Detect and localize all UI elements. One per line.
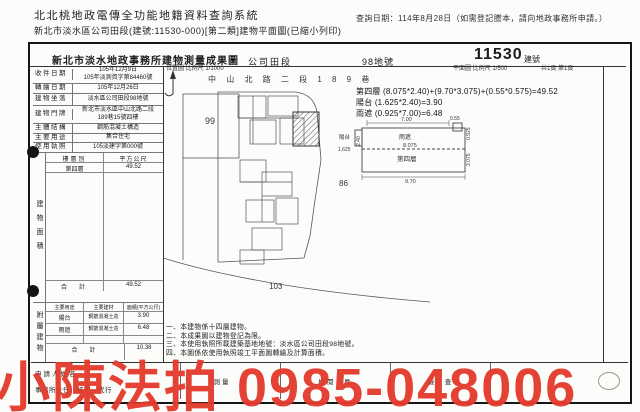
total-value: 49.52: [104, 281, 163, 291]
dim-right-top: 0.925: [466, 127, 472, 140]
system-title: 北北桃地政電傳全功能地籍資料查詢系統: [34, 7, 259, 23]
info-value: 105淡建字第000號: [73, 143, 163, 153]
hole-punch-mark: [27, 285, 39, 297]
building-info-table: 收件日期 105年12月9日105年淡測資字第84460號 轉繪日期 105年1…: [33, 66, 163, 153]
balcony-label: 陽台: [339, 133, 351, 141]
info-value-line: 189巷15號四樓: [98, 115, 139, 121]
col-material: 主要建材: [84, 303, 124, 311]
dim-balcony: 1.625: [338, 147, 351, 153]
query-date: 查詢日期：114年8月28日（如需登記謄本，請向地政事務所申請。）: [356, 13, 607, 24]
table-row: 第四層 49.52: [46, 163, 163, 173]
dim-mid: 8.075: [403, 143, 417, 149]
seal-stamp-icon: [598, 372, 620, 390]
info-value-line: 105年12月9日: [99, 67, 137, 73]
total-row: 合 計 49.52: [46, 281, 163, 291]
scanned-document: 北北桃地政電傳全功能地籍資料查詢系統 查詢日期：114年8月28日（如需登記謄本…: [0, 0, 640, 412]
parcel-label-103: 103: [269, 282, 283, 291]
road-curve: [163, 258, 430, 302]
location-map-scale: 位置圖 比例尺 1/1000: [166, 64, 224, 72]
col-unit: 平方公尺: [104, 153, 163, 162]
area-side-label: 建物面積: [33, 153, 46, 302]
dim-right: 3.075: [466, 153, 472, 166]
table-row: 使用執照 105淡建字第000號: [33, 143, 163, 153]
info-label: 使用執照: [33, 142, 73, 152]
info-value: 集合住宅: [73, 133, 163, 143]
annex-area: 3.90: [124, 312, 163, 323]
empty-cell: [124, 336, 163, 343]
info-label: 建物門牌: [33, 109, 73, 119]
parcel-label-86: 86: [339, 179, 348, 188]
table-row: 雨遮 鋼筋混凝土造 6.48: [46, 324, 163, 336]
table-row: 收件日期 105年12月9日105年淡測資字第84460號: [33, 66, 163, 84]
calc-line: 第四層 (8.075*2.40)+(9.70*3.075)+(0.55*0.57…: [356, 86, 606, 97]
auction-watermark: 小陳法拍 0985-048006: [0, 343, 577, 412]
dimension-lines: [362, 120, 465, 180]
empty-rows: [46, 173, 163, 281]
building-area-table: 建物面積 樓層別 平方公尺 第四層 49.52 合 計 49.52: [33, 153, 163, 303]
dim-left: 2.40: [356, 136, 362, 146]
floor-label: 第四層: [397, 154, 417, 163]
col-use: 主要用途: [46, 303, 84, 311]
empty-cell: [46, 336, 84, 343]
canopy-label: 雨遮: [399, 133, 411, 141]
site-plan: [163, 92, 430, 302]
area-calculation: 第四層 (8.075*2.40)+(9.70*3.075)+(0.55*0.57…: [356, 86, 606, 119]
col-floor: 樓層別: [46, 153, 104, 162]
floor-outline: [362, 128, 465, 172]
floor-area: 49.52: [104, 163, 163, 172]
annex-area: 6.48: [124, 324, 163, 335]
annex-use: 陽台: [46, 312, 84, 323]
empty-cell: [46, 173, 104, 280]
info-value: 105年12月26日: [73, 84, 163, 94]
table-header-row: 主要用途 主要建材 面積(平方公尺): [46, 303, 163, 312]
info-value: 新北市淡水區中山北路二段189巷15號四樓: [73, 106, 163, 123]
page-indicator: 共1頁 第1頁: [541, 64, 573, 72]
calc-line: 雨遮 (0.925*7.00)=6.48: [356, 108, 606, 119]
calc-line: 陽台 (1.625*2.40)=3.90: [356, 97, 606, 108]
info-label: 建物坐落: [33, 94, 73, 104]
note-line: 二、本成果圖以建物登記為限。: [166, 333, 511, 342]
info-value-line: 105年淡測資字第84460號: [84, 75, 153, 81]
road-label: 中 山 北 路 二 段 1 8 9 巷: [208, 74, 373, 84]
table-header-row: 樓層別 平方公尺: [46, 153, 163, 163]
area-side-text: 建物面積: [34, 200, 44, 256]
detail-floor-plan: [355, 120, 465, 180]
table-row: 建物坐落 淡水區公司田段98地號: [33, 94, 163, 106]
subject-unit-hatched: [293, 112, 319, 146]
info-value: 鋼筋混凝土構造: [73, 124, 163, 134]
north-arrow-icon: [165, 70, 176, 96]
floor-plan-scale: 平面圖 比例尺 1/500: [453, 64, 508, 72]
info-value: 淡水區公司田段98地號: [73, 95, 163, 105]
hole-punch-mark: [27, 146, 39, 158]
info-label: 轉繪日期: [33, 83, 73, 93]
info-value: 105年12月9日105年淡測資字第84460號: [73, 66, 163, 83]
annex-material: 鋼筋混凝土造: [84, 324, 124, 335]
table-row: 建物門牌 新北市淡水區中山北路二段189巷15號四樓: [33, 106, 163, 124]
col-area: 面積(平方公尺): [124, 303, 163, 311]
info-label: 收件日期: [33, 69, 73, 79]
parcel-label-99: 99: [205, 116, 215, 126]
dim-bottom: 9.70: [405, 179, 416, 185]
corner-canopy-outline: [453, 123, 462, 131]
document-subtitle: 新北市淡水區公司田段(建號:11530-000)[第二類]建物平面圖(已縮小列印…: [34, 24, 341, 37]
note-line: 一、本建物係十四層建物。: [166, 324, 511, 333]
info-value-line: 新北市淡水區中山北路二段: [82, 107, 154, 113]
floor-name: 第四層: [46, 163, 104, 172]
parcel-99-boundary: [183, 94, 239, 158]
empty-cell: [84, 336, 124, 343]
empty-cell: [104, 173, 163, 280]
table-row: 陽台 鋼筋混凝土造 3.90: [46, 312, 163, 324]
annex-use: 雨遮: [46, 324, 84, 335]
total-label: 合 計: [46, 281, 104, 291]
annex-material: 鋼筋混凝土造: [84, 312, 124, 323]
table-row: 轉繪日期 105年12月26日: [33, 84, 163, 94]
